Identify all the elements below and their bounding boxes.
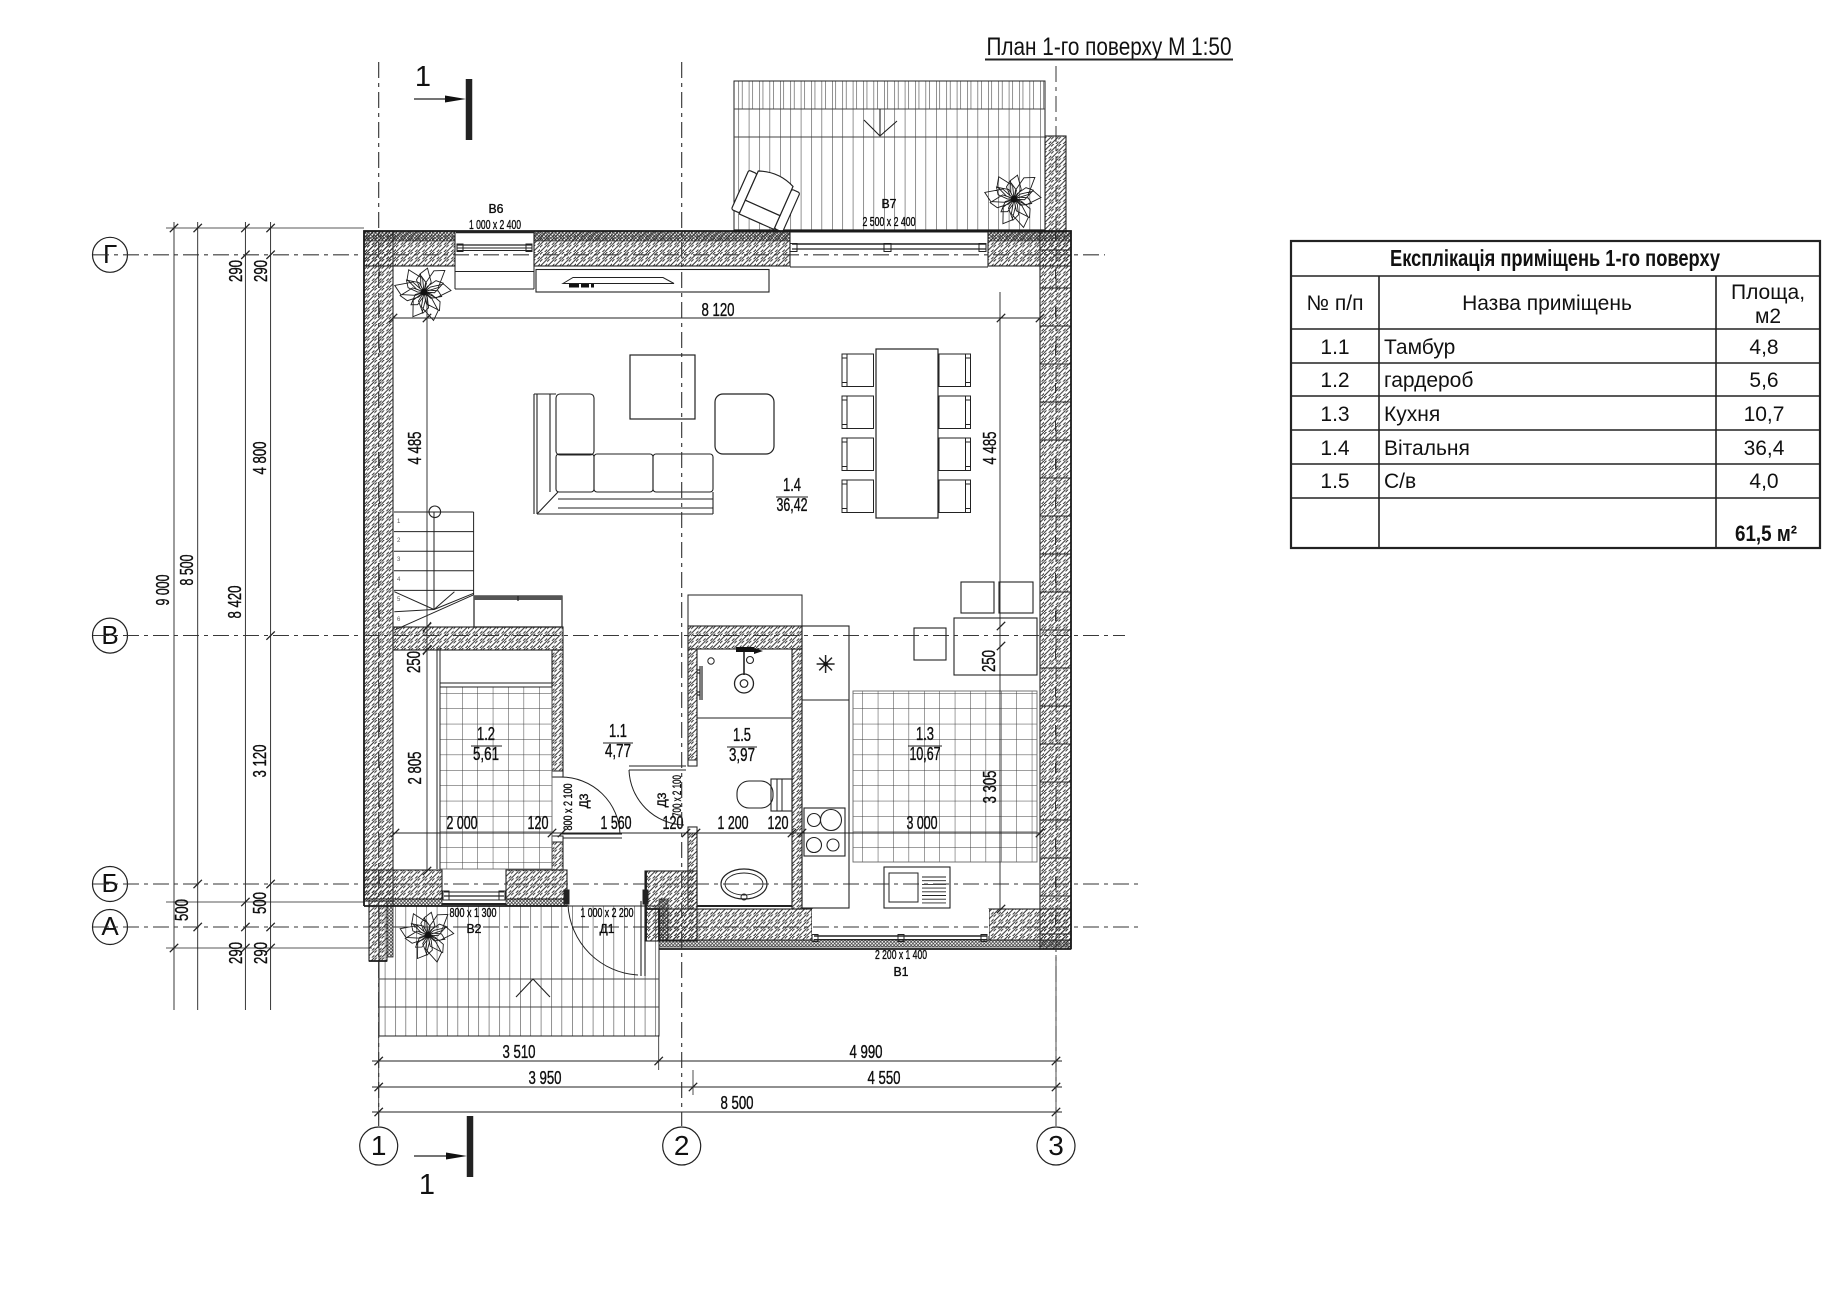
svg-text:3 510: 3 510 (503, 1042, 536, 1062)
svg-text:61,5 м²: 61,5 м² (1735, 521, 1797, 546)
svg-text:3: 3 (1048, 1130, 1064, 1161)
svg-text:1.3: 1.3 (1320, 403, 1349, 426)
svg-text:1 560: 1 560 (601, 813, 632, 833)
svg-text:1: 1 (371, 1130, 387, 1161)
svg-text:120: 120 (768, 813, 789, 833)
svg-text:500: 500 (250, 892, 270, 914)
svg-text:290: 290 (226, 942, 246, 964)
svg-text:А: А (101, 911, 119, 941)
svg-text:В2: В2 (467, 921, 482, 936)
svg-text:120: 120 (528, 813, 549, 833)
svg-text:В6: В6 (489, 201, 504, 216)
svg-text:1.1: 1.1 (1320, 336, 1349, 359)
svg-text:3 950: 3 950 (529, 1068, 562, 1088)
svg-text:2: 2 (674, 1130, 690, 1161)
svg-text:8 120: 8 120 (702, 300, 735, 320)
svg-text:120: 120 (663, 813, 684, 833)
svg-text:4 800: 4 800 (250, 442, 270, 475)
svg-text:8 420: 8 420 (225, 586, 245, 619)
svg-text:Д1: Д1 (600, 921, 615, 936)
svg-text:5,6: 5,6 (1749, 369, 1778, 392)
svg-text:2 805: 2 805 (405, 752, 425, 785)
svg-text:290: 290 (251, 260, 271, 282)
svg-text:1.1: 1.1 (609, 721, 627, 741)
svg-text:В: В (101, 620, 118, 650)
svg-text:Кухня: Кухня (1384, 403, 1440, 426)
svg-text:3,97: 3,97 (729, 745, 755, 765)
svg-text:8 500: 8 500 (177, 555, 197, 586)
svg-text:1 000 х 2 400: 1 000 х 2 400 (469, 217, 521, 232)
svg-text:800 х 2 100: 800 х 2 100 (561, 783, 575, 830)
svg-text:Д3: Д3 (655, 792, 669, 807)
svg-text:4,8: 4,8 (1749, 336, 1778, 359)
svg-text:4 485: 4 485 (980, 432, 1000, 465)
svg-text:250: 250 (979, 650, 999, 672)
svg-text:1 000 х 2 200: 1 000 х 2 200 (581, 905, 634, 920)
svg-text:Площа,: Площа, (1731, 281, 1805, 304)
svg-text:2 000: 2 000 (447, 813, 478, 833)
svg-text:1.4: 1.4 (1320, 437, 1350, 460)
svg-text:3 120: 3 120 (250, 745, 270, 778)
svg-text:С/в: С/в (1384, 470, 1416, 493)
svg-text:1.4: 1.4 (783, 475, 801, 495)
svg-text:Тамбур: Тамбур (1384, 336, 1455, 359)
svg-text:м2: м2 (1755, 305, 1781, 328)
svg-text:1.2: 1.2 (1320, 369, 1349, 392)
svg-text:1.5: 1.5 (1320, 470, 1349, 493)
svg-text:2 500 х 2 400: 2 500 х 2 400 (863, 214, 916, 229)
svg-text:Г: Г (103, 239, 117, 269)
svg-text:1 200: 1 200 (718, 813, 749, 833)
svg-text:2 200 х 1 400: 2 200 х 1 400 (875, 947, 927, 962)
svg-text:№ п/п: № п/п (1307, 292, 1364, 315)
svg-text:800 х 1 300: 800 х 1 300 (450, 905, 497, 920)
svg-text:4 990: 4 990 (850, 1042, 883, 1062)
svg-text:4 485: 4 485 (405, 432, 425, 465)
svg-text:В7: В7 (882, 196, 897, 211)
svg-text:Назва приміщень: Назва приміщень (1462, 292, 1632, 315)
svg-text:250: 250 (404, 651, 424, 673)
svg-text:План 1-го поверху М 1:50: План 1-го поверху М 1:50 (987, 33, 1232, 61)
svg-text:1.2: 1.2 (477, 724, 495, 744)
svg-text:4,77: 4,77 (605, 741, 631, 761)
svg-text:В1: В1 (894, 964, 909, 979)
svg-text:1: 1 (419, 1169, 435, 1201)
svg-text:Д3: Д3 (577, 793, 591, 808)
svg-text:3 000: 3 000 (907, 813, 938, 833)
svg-text:Б: Б (101, 868, 118, 898)
svg-text:10,7: 10,7 (1744, 403, 1785, 426)
svg-text:9 000: 9 000 (153, 575, 173, 606)
svg-text:Вітальня: Вітальня (1384, 437, 1470, 460)
svg-text:3 305: 3 305 (980, 771, 1000, 804)
svg-text:290: 290 (226, 260, 246, 282)
svg-text:10,67: 10,67 (910, 744, 941, 764)
svg-text:4,0: 4,0 (1749, 470, 1778, 493)
svg-text:8 500: 8 500 (721, 1093, 754, 1113)
svg-text:36,42: 36,42 (777, 495, 808, 515)
svg-text:гардероб: гардероб (1384, 369, 1473, 392)
svg-text:Експлікація приміщень 1-го пов: Експлікація приміщень 1-го поверху (1390, 245, 1720, 271)
svg-text:290: 290 (251, 942, 271, 964)
svg-text:4 550: 4 550 (868, 1068, 901, 1088)
svg-text:1.3: 1.3 (916, 724, 934, 744)
svg-text:5,61: 5,61 (473, 744, 499, 764)
svg-text:1: 1 (415, 61, 431, 93)
svg-text:1.5: 1.5 (733, 725, 751, 745)
svg-text:36,4: 36,4 (1744, 437, 1785, 460)
